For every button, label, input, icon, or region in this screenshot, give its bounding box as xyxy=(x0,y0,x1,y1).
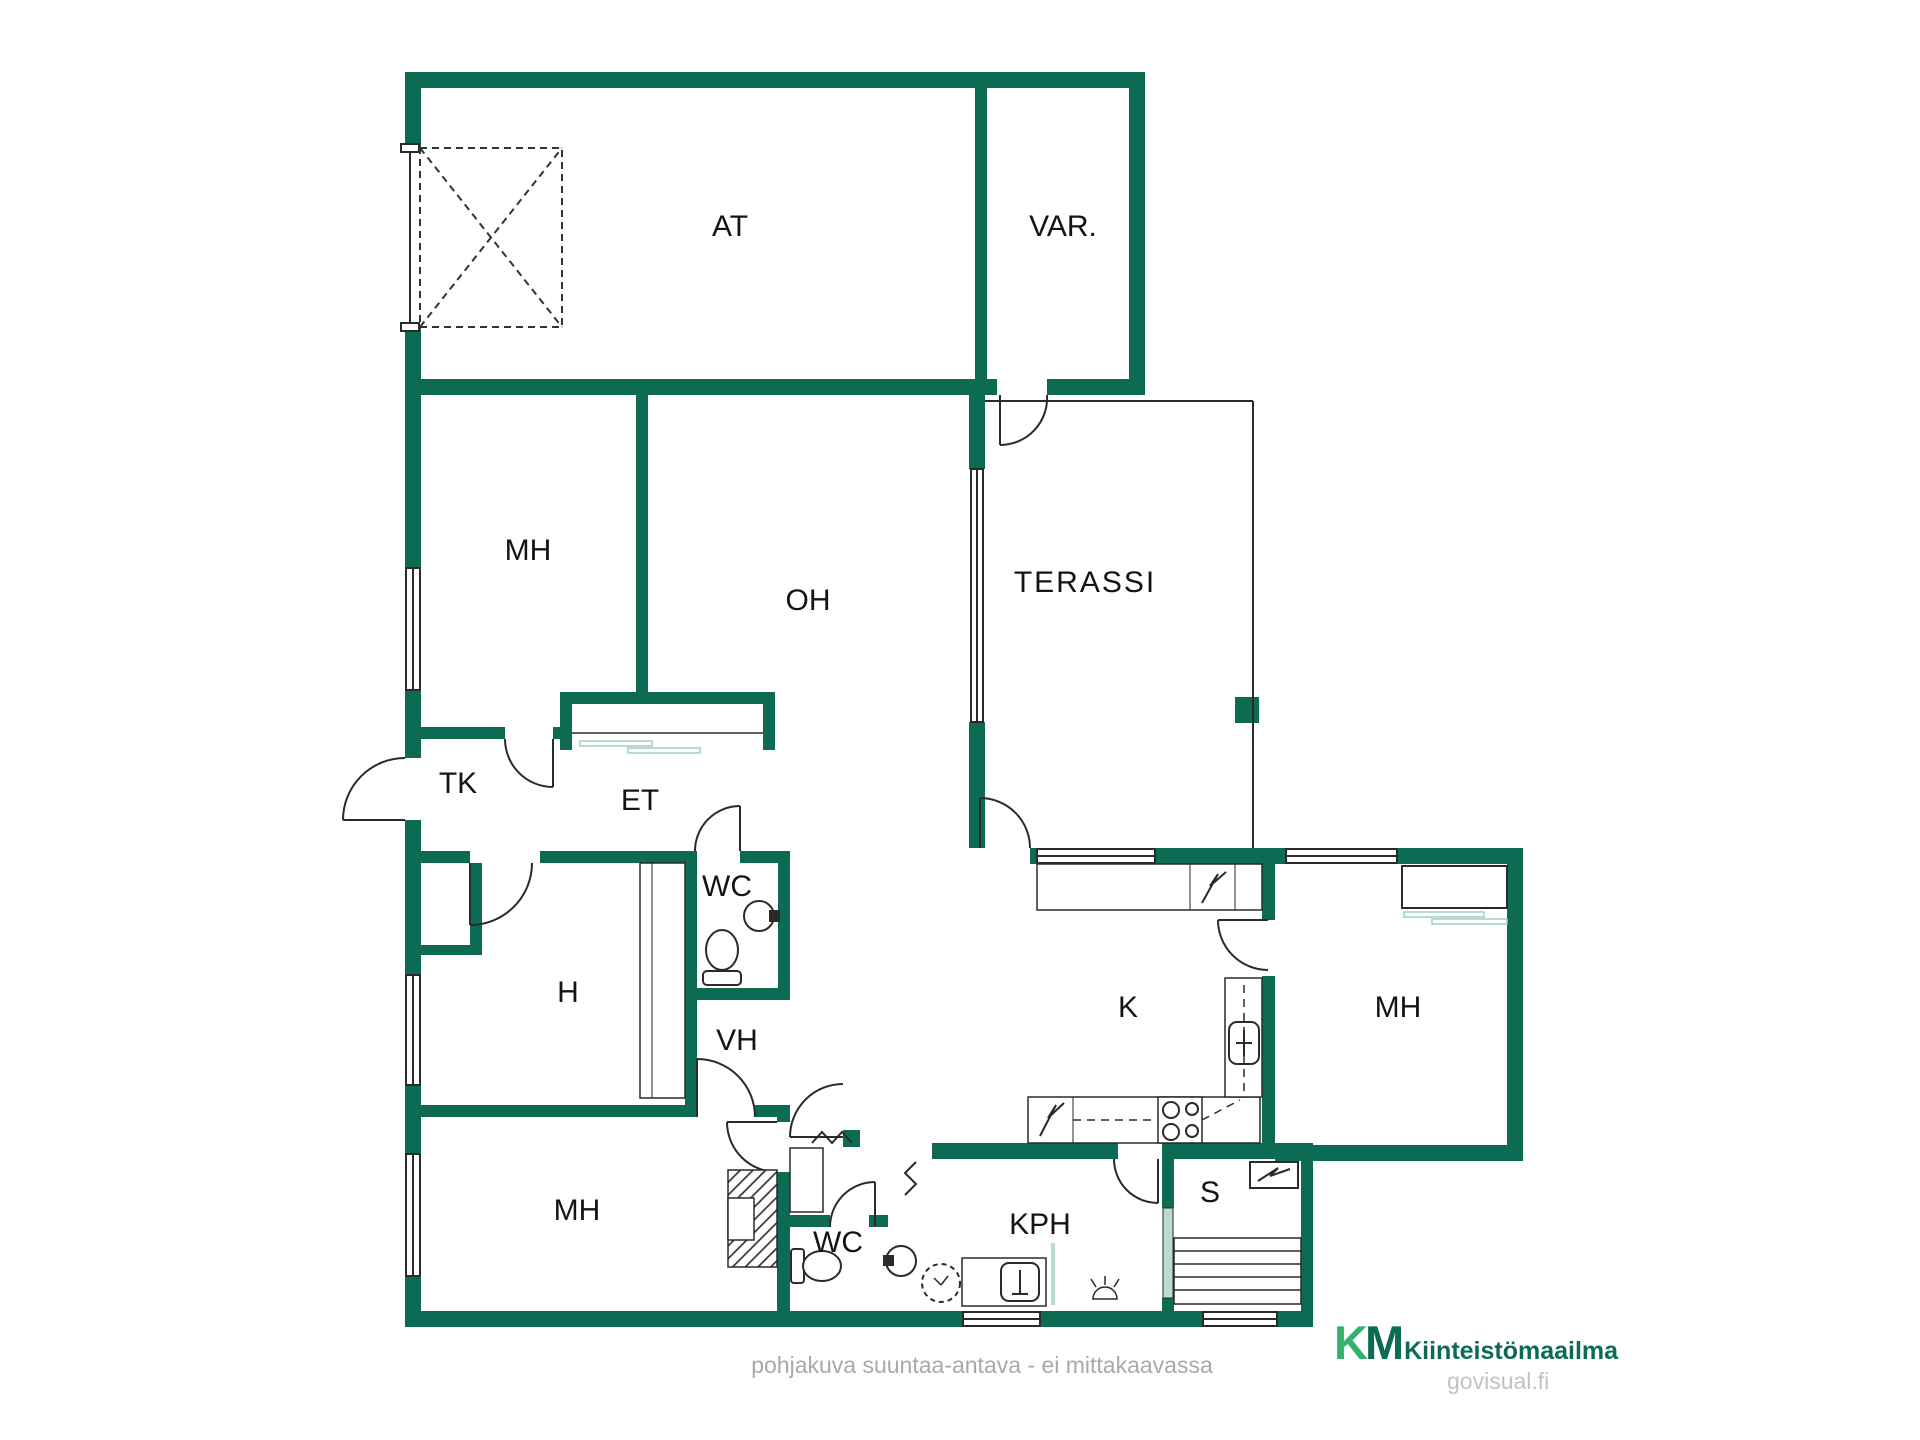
washing-machine-icon xyxy=(922,1264,960,1302)
sliding-door xyxy=(628,748,700,753)
floor-plan-svg: AT VAR. MH OH TERASSI TK ET WC H VH K MH… xyxy=(0,0,1920,1440)
entry-door-arc xyxy=(343,758,405,820)
room-label-k: K xyxy=(1118,991,1138,1024)
door-arc xyxy=(1000,395,1047,445)
window xyxy=(1037,849,1155,863)
door-arc xyxy=(1114,1159,1158,1203)
floor-plan-page: AT VAR. MH OH TERASSI TK ET WC H VH K MH… xyxy=(0,0,1920,1440)
window xyxy=(971,469,983,722)
opening-zigzags xyxy=(812,1132,916,1195)
floor-drain-icon xyxy=(1091,1276,1119,1299)
door-arc xyxy=(727,1122,777,1172)
toilet-icon xyxy=(703,930,741,985)
room-label-at: AT xyxy=(712,210,748,243)
sauna-benches xyxy=(1174,1238,1301,1304)
window xyxy=(406,975,420,1085)
room-label-et: ET xyxy=(621,784,659,817)
garage-door xyxy=(401,144,419,331)
room-label-oh: OH xyxy=(786,584,831,617)
kitchen-counter xyxy=(1037,864,1262,910)
room-label-wc2: WC xyxy=(813,1226,863,1259)
chimney-hatch xyxy=(728,1170,777,1267)
door-arc xyxy=(790,1084,843,1137)
room-label-tk: TK xyxy=(439,767,477,800)
door-arc xyxy=(505,739,553,787)
room-label-kph: KPH xyxy=(1009,1208,1071,1241)
door-arc xyxy=(1218,920,1268,970)
kitchen-counter xyxy=(1028,978,1262,1143)
door-arc xyxy=(695,806,740,851)
sink-icon xyxy=(744,901,779,931)
sink-icon xyxy=(884,1246,916,1276)
wardrobe xyxy=(640,863,685,1098)
terrace-outline xyxy=(985,401,1253,848)
sliding-door xyxy=(1404,912,1484,917)
door-arc xyxy=(697,1059,755,1117)
sliding-door xyxy=(1432,919,1507,924)
window xyxy=(406,568,420,690)
room-label-mh1: MH xyxy=(505,534,552,567)
door-arc xyxy=(830,1182,875,1227)
dashed-cross xyxy=(420,148,562,327)
zigzag-opening xyxy=(905,1162,916,1195)
stove-icon xyxy=(1158,1097,1202,1143)
room-label-s: S xyxy=(1200,1176,1220,1209)
room-label-h: H xyxy=(557,976,579,1009)
shower-glass xyxy=(1051,1243,1055,1305)
sauna-glass-door xyxy=(1163,1208,1173,1298)
window xyxy=(1203,1312,1277,1326)
sliding-door xyxy=(580,741,652,746)
bathroom-counter xyxy=(962,1258,1046,1306)
terrace-pillar xyxy=(1235,697,1259,723)
room-label-wc1: WC xyxy=(702,870,752,903)
cabinet xyxy=(790,1148,823,1212)
wardrobe xyxy=(1402,866,1507,908)
door-arc xyxy=(980,798,1030,848)
km-logo-icon: KM xyxy=(1334,1316,1401,1369)
room-label-terassi: TERASSI xyxy=(1014,566,1156,599)
window xyxy=(1286,849,1397,863)
window xyxy=(963,1312,1040,1326)
room-label-var: VAR. xyxy=(1029,210,1097,243)
room-label-vh: VH xyxy=(716,1024,758,1057)
sauna-heater-icon xyxy=(1250,1162,1298,1188)
room-label-mh2: MH xyxy=(1375,991,1422,1024)
brand-logo: KMKiinteistömaailma govisual.fi xyxy=(1334,1318,1694,1393)
room-label-mh3: MH xyxy=(554,1194,601,1227)
watermark-text: govisual.fi xyxy=(1447,1369,1694,1393)
brand-company-name: Kiinteistömaailma xyxy=(1404,1337,1618,1365)
window xyxy=(406,1154,420,1276)
walls xyxy=(405,72,1523,1327)
